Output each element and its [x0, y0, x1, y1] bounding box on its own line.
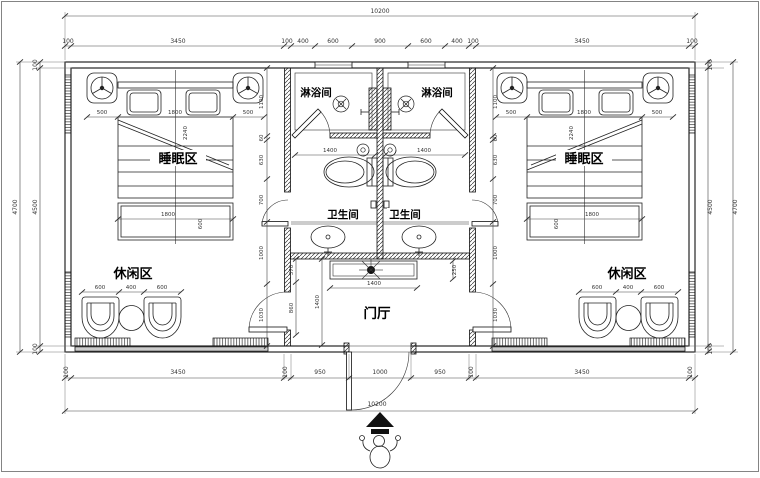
dim: 100	[32, 343, 39, 355]
dim: 100	[686, 38, 698, 45]
dim: 3450	[170, 38, 185, 45]
dim: 700	[259, 194, 265, 205]
dim: 1400	[367, 281, 381, 287]
dim: 900	[374, 38, 386, 45]
dim: 100	[707, 343, 714, 355]
dim: 500	[97, 110, 108, 116]
dim: 700	[493, 194, 499, 205]
dim-top-total: 10200	[370, 8, 389, 15]
window-right-lower	[689, 272, 695, 337]
leisure-right	[579, 297, 678, 338]
interior-walls	[285, 68, 476, 346]
heater-strip	[492, 338, 547, 346]
entry-arrow-icon	[366, 412, 394, 434]
dim: 600	[95, 285, 106, 291]
bathroom-door-leaf	[472, 222, 498, 227]
dim: 500	[506, 110, 517, 116]
dim: 100	[687, 366, 694, 378]
floor-drain-icon	[333, 96, 349, 112]
dim: 950	[314, 369, 326, 376]
dim: 370	[289, 264, 295, 275]
dim: 500	[243, 110, 254, 116]
armchair-icon	[579, 297, 616, 338]
label-sleep-left: 睡眠区	[158, 151, 197, 167]
armchair-icon	[82, 297, 119, 338]
dim: 3450	[574, 38, 589, 45]
room-door-leaf	[473, 327, 511, 332]
floor-drain-icon	[398, 96, 414, 112]
dim: 600	[592, 285, 603, 291]
door-swing-arc	[430, 110, 441, 136]
window-left-lower	[65, 272, 71, 337]
dim: 1000	[493, 246, 499, 260]
leisure-left	[82, 297, 181, 338]
dim: 100	[281, 38, 293, 45]
dim: 60	[259, 134, 265, 141]
dim: 500	[652, 110, 663, 116]
dim: 3450	[574, 369, 589, 376]
label-wc-right: 卫生间	[389, 208, 421, 221]
dim: 4700	[732, 199, 739, 214]
dim: 1800	[168, 110, 182, 116]
bathroom-door-leaf	[262, 222, 288, 227]
pipe-shaft	[383, 88, 391, 130]
heater-strip	[630, 338, 685, 346]
dim: 1400	[323, 148, 337, 154]
dim: 4500	[32, 199, 39, 214]
dim: 630	[493, 154, 499, 165]
label-shower-right: 淋浴间	[421, 86, 453, 99]
wash-basin-icon	[311, 226, 345, 256]
door-swing-arc	[473, 292, 511, 330]
dim: 1100	[493, 95, 499, 109]
dim: 1800	[577, 110, 591, 116]
dim: 1000	[372, 369, 387, 376]
room-door-leaf	[249, 327, 287, 332]
toilet-paper-icon	[357, 144, 369, 156]
dim-bottom-total: 10200	[367, 401, 386, 408]
heater-strip	[75, 338, 130, 346]
label-leisure-left: 休闲区	[112, 266, 152, 282]
dim: 600	[554, 218, 560, 229]
wash-basin-icon	[402, 226, 436, 256]
dim: 400	[623, 285, 634, 291]
dim: 60	[493, 134, 499, 141]
pipe-shaft	[369, 88, 377, 130]
dim: 100	[468, 366, 475, 378]
armchair-icon	[641, 297, 678, 338]
person-icon	[360, 436, 401, 469]
dim: 860	[289, 302, 295, 313]
dim: 600	[327, 38, 339, 45]
door-swing-arc	[319, 110, 330, 136]
ceiling-light-icon	[497, 73, 527, 103]
dim: 400	[297, 38, 309, 45]
dim: 1800	[161, 212, 175, 218]
ceiling-light-icon	[643, 73, 673, 103]
door-stop	[371, 201, 376, 208]
dim: 1000	[259, 246, 265, 260]
dim: 400	[451, 38, 463, 45]
floor-plan-sheet: 10200 100 3450 100 400 600 900 600 400 1…	[0, 0, 760, 473]
dim: 100	[467, 38, 479, 45]
window-left-upper	[65, 75, 71, 133]
dim: 4500	[707, 199, 714, 214]
shower-door-leaf	[292, 109, 321, 138]
door-stop	[384, 201, 389, 208]
dim: 600	[420, 38, 432, 45]
label-wc-left: 卫生间	[327, 208, 359, 221]
dim: 100	[32, 59, 39, 71]
toilet-icon	[383, 157, 436, 187]
heater-strip	[213, 338, 268, 346]
window-right-upper	[689, 75, 695, 133]
dim: 2240	[183, 126, 189, 140]
dim: 1400	[417, 148, 431, 154]
dim: 1030	[493, 308, 499, 322]
door-swing-arc	[249, 292, 287, 330]
dim: 600	[198, 218, 204, 229]
tea-table-icon	[616, 306, 641, 331]
dim: 100	[63, 366, 70, 378]
floor-plan-drawing: 10200 100 3450 100 400 600 900 600 400 1…	[0, 0, 760, 473]
label-hall: 门厅	[364, 305, 391, 322]
dim: 400	[126, 285, 137, 291]
label-leisure-right: 休闲区	[606, 266, 646, 282]
dim: 1800	[585, 212, 599, 218]
label-sleep-right: 睡眠区	[564, 151, 603, 167]
dim: 100	[62, 38, 74, 45]
dim: 100	[707, 59, 714, 71]
ceiling-light-icon	[87, 73, 117, 103]
dim: 100	[282, 366, 289, 378]
dim: 1400	[315, 295, 321, 309]
door-jamb	[411, 343, 416, 354]
dim: 1100	[259, 95, 265, 109]
tea-table-icon	[119, 306, 144, 331]
dim: 2240	[569, 126, 575, 140]
dim: 630	[259, 154, 265, 165]
dim: 3450	[170, 369, 185, 376]
toilet-icon	[324, 157, 377, 187]
dim: 950	[434, 369, 446, 376]
dim: 250	[452, 264, 458, 275]
dim: 600	[157, 285, 168, 291]
dim: 4700	[12, 199, 19, 214]
dim: 1030	[259, 308, 265, 322]
label-shower-left: 淋浴间	[300, 86, 332, 99]
armchair-icon	[144, 297, 181, 338]
shower-door-leaf	[439, 109, 468, 138]
dim: 600	[654, 285, 665, 291]
